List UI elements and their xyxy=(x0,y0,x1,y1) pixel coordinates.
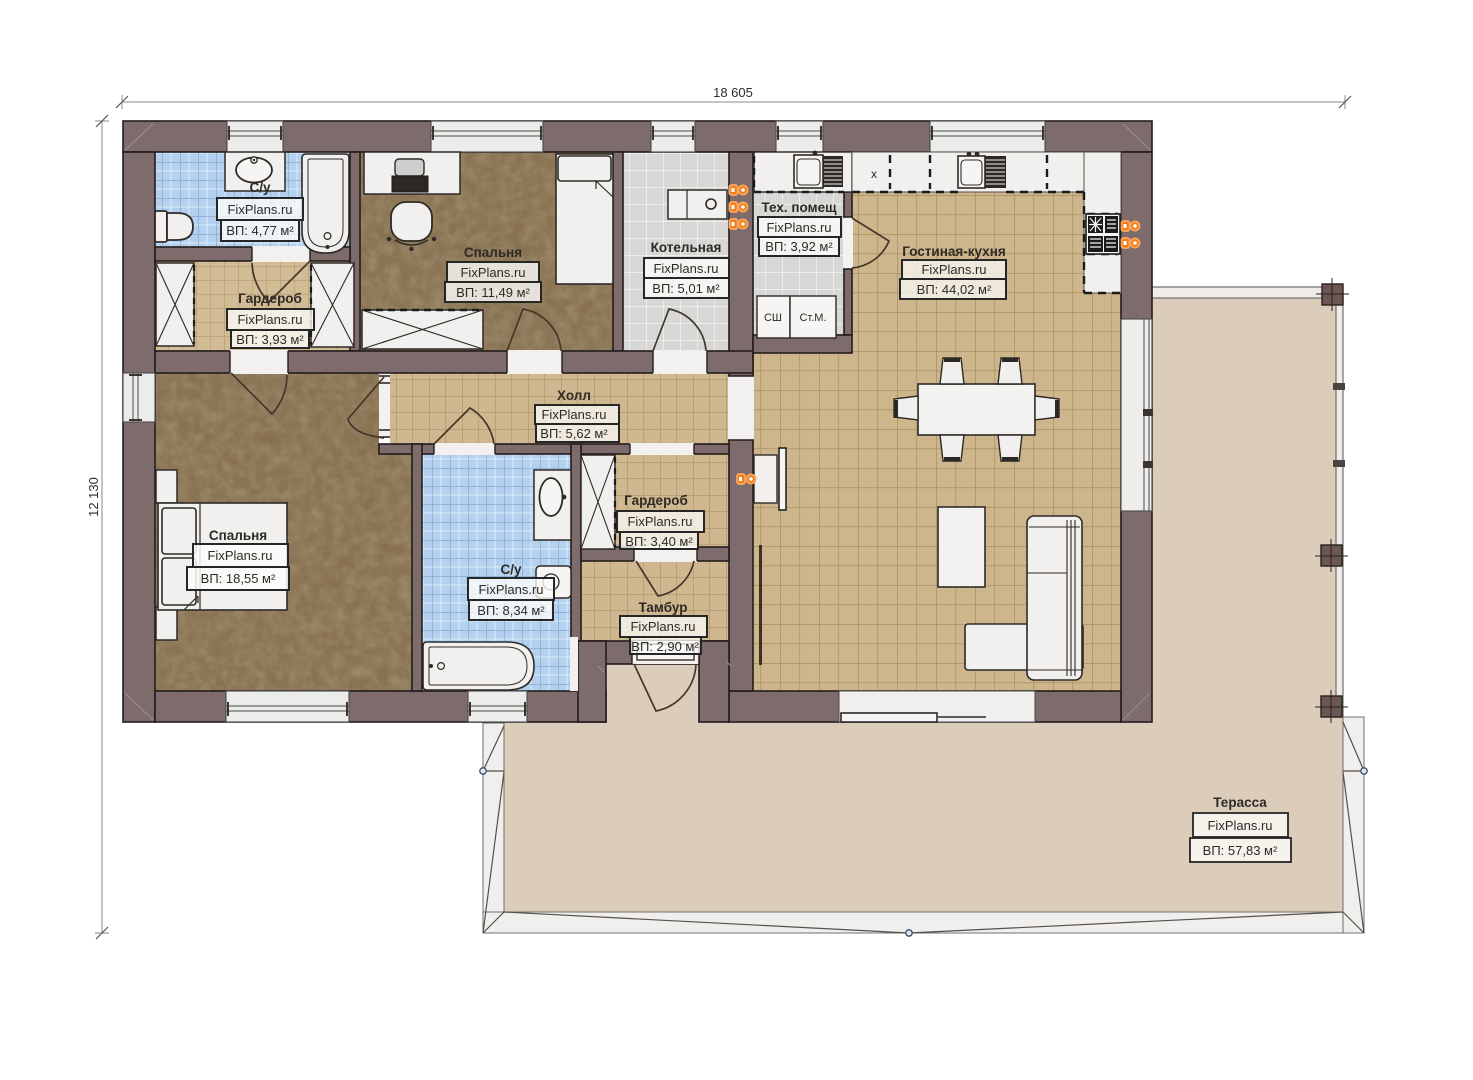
svg-text:ВП: 3,92 м²: ВП: 3,92 м² xyxy=(765,239,833,254)
svg-text:FixPlans.ru: FixPlans.ru xyxy=(627,514,692,529)
svg-text:С/у: С/у xyxy=(249,180,271,195)
svg-text:FixPlans.ru: FixPlans.ru xyxy=(1207,818,1272,833)
svg-text:FixPlans.ru: FixPlans.ru xyxy=(541,407,606,422)
svg-text:FixPlans.ru: FixPlans.ru xyxy=(921,262,986,277)
svg-text:Тамбур: Тамбур xyxy=(639,600,688,615)
svg-text:ВП: 8,34 м²: ВП: 8,34 м² xyxy=(477,603,545,618)
svg-text:FixPlans.ru: FixPlans.ru xyxy=(237,312,302,327)
svg-text:x: x xyxy=(871,167,877,181)
svg-text:ВП: 4,77 м²: ВП: 4,77 м² xyxy=(226,223,294,238)
svg-text:ВП: 3,40 м²: ВП: 3,40 м² xyxy=(625,534,693,549)
svg-text:FixPlans.ru: FixPlans.ru xyxy=(766,220,831,235)
svg-text:Спальня: Спальня xyxy=(464,245,522,260)
svg-text:Котельная: Котельная xyxy=(651,240,722,255)
svg-text:ВП: 3,93 м²: ВП: 3,93 м² xyxy=(236,332,304,347)
svg-text:Терасса: Терасса xyxy=(1213,795,1267,810)
svg-text:Спальня: Спальня xyxy=(209,528,267,543)
svg-text:ВП: 57,83 м²: ВП: 57,83 м² xyxy=(1203,843,1278,858)
svg-text:Тех. помещ: Тех. помещ xyxy=(761,200,837,215)
svg-text:FixPlans.ru: FixPlans.ru xyxy=(207,548,272,563)
svg-text:С/у: С/у xyxy=(500,562,522,577)
svg-text:ВП: 5,62 м²: ВП: 5,62 м² xyxy=(540,426,608,441)
svg-text:Ст.М.: Ст.М. xyxy=(799,312,826,324)
svg-text:Гардероб: Гардероб xyxy=(238,291,302,306)
svg-text:FixPlans.ru: FixPlans.ru xyxy=(478,582,543,597)
svg-text:18 605: 18 605 xyxy=(713,85,753,100)
svg-text:FixPlans.ru: FixPlans.ru xyxy=(630,619,695,634)
svg-text:FixPlans.ru: FixPlans.ru xyxy=(460,265,525,280)
svg-text:ВП: 5,01 м²: ВП: 5,01 м² xyxy=(652,281,720,296)
svg-text:ВП: 11,49 м²: ВП: 11,49 м² xyxy=(456,285,530,300)
svg-text:ВП: 2,90 м²: ВП: 2,90 м² xyxy=(631,639,699,654)
svg-text:FixPlans.ru: FixPlans.ru xyxy=(227,202,292,217)
svg-text:FixPlans.ru: FixPlans.ru xyxy=(653,261,718,276)
svg-text:Холл: Холл xyxy=(557,388,591,403)
svg-text:Гостиная-кухня: Гостиная-кухня xyxy=(902,244,1005,259)
svg-text:ВП: 18,55 м²: ВП: 18,55 м² xyxy=(201,571,276,586)
svg-text:Гардероб: Гардероб xyxy=(624,493,688,508)
svg-text:ВП: 44,02 м²: ВП: 44,02 м² xyxy=(917,282,992,297)
svg-text:12 130: 12 130 xyxy=(86,477,101,517)
svg-text:СШ: СШ xyxy=(764,312,782,324)
